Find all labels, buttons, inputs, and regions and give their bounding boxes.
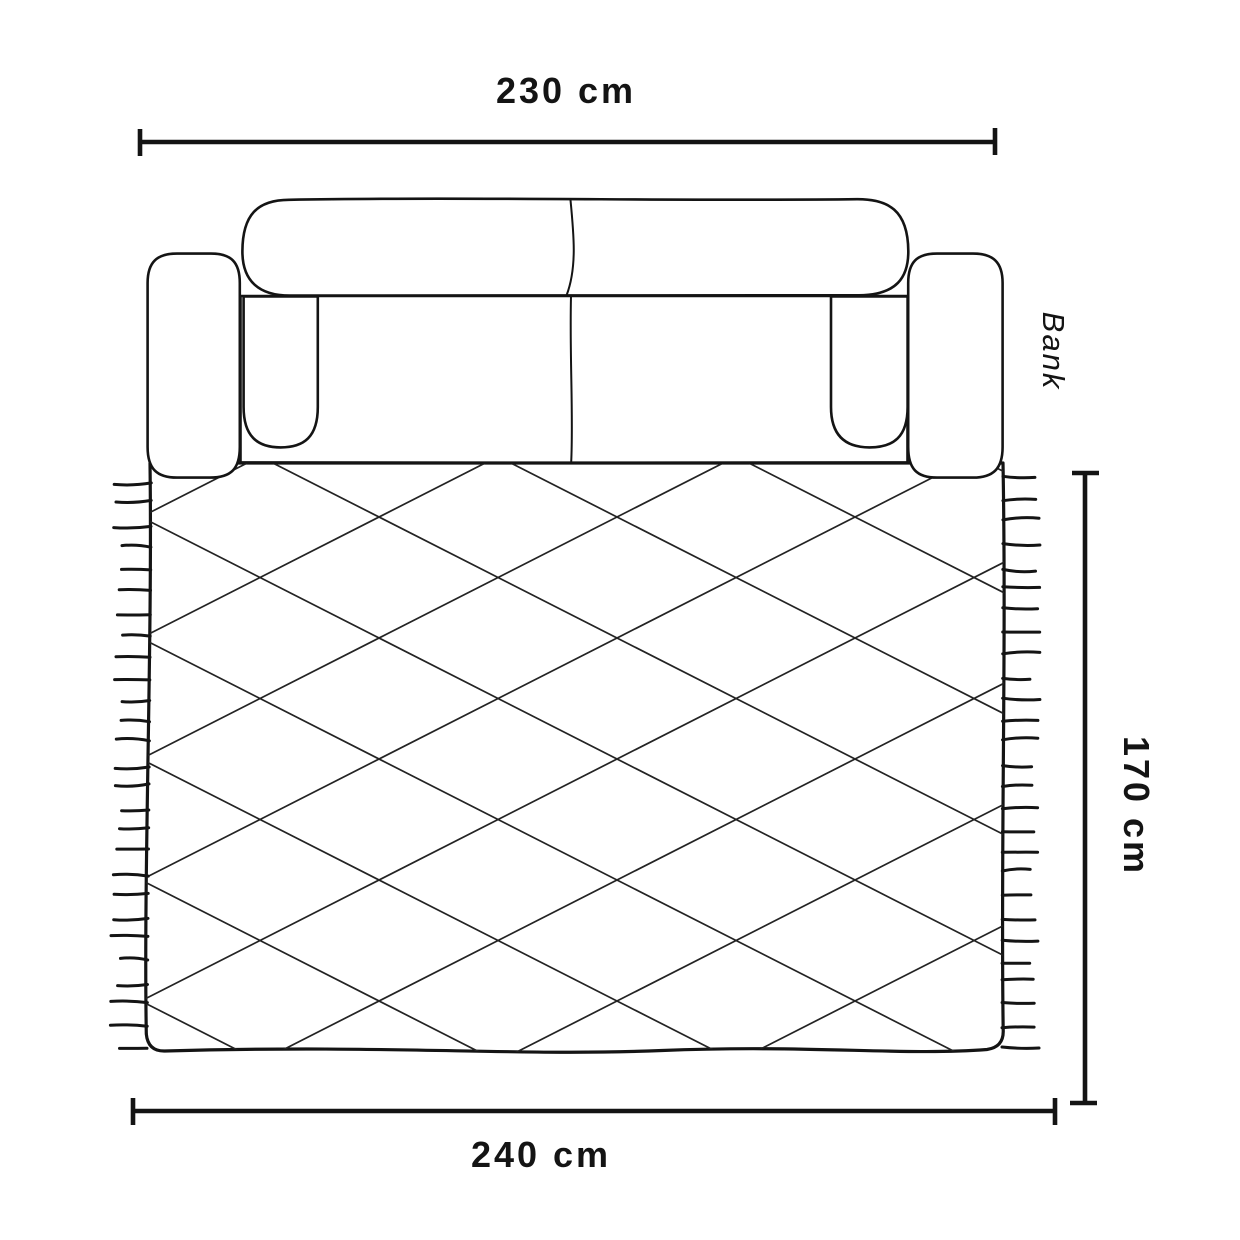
rug-depth-label: 170 cm <box>1116 736 1157 876</box>
fringe-strand <box>111 935 148 936</box>
fringe-strand <box>116 500 151 502</box>
fringe-strand <box>115 784 149 786</box>
sofa-armrest-left <box>148 254 240 478</box>
dimension-right: 170 cm <box>1070 473 1157 1104</box>
fringe-strand <box>119 589 150 590</box>
sofa-armrest-right <box>908 254 1002 478</box>
fringe-strand <box>114 893 148 894</box>
sofa <box>148 199 1003 478</box>
fringe-strand <box>1002 940 1038 941</box>
fringe-strand <box>1003 652 1040 654</box>
fringe-strand <box>1002 869 1030 871</box>
fringe-strand <box>1003 720 1038 721</box>
sofa-name-label: Bank <box>1036 312 1071 391</box>
fringe-strand <box>114 526 151 528</box>
fringe-strand <box>120 828 149 829</box>
fringe-strand <box>1003 678 1030 679</box>
fringe-strand <box>1003 569 1036 571</box>
fringe-strand <box>1002 807 1037 808</box>
fringe-strand <box>122 701 150 703</box>
fringe-strand <box>121 958 148 960</box>
fringe-strand <box>113 874 148 876</box>
fringe-strand <box>114 483 151 485</box>
fringe-strand <box>110 1025 147 1026</box>
fringe-strand <box>1003 738 1038 740</box>
sofa-rug-dimension-drawing: 230 cm 240 cm 170 cm Bank <box>0 0 1240 1240</box>
fringe-strand <box>116 656 150 657</box>
fringe-strand <box>1003 608 1038 609</box>
fringe-strand <box>1002 979 1033 980</box>
fringe-strand <box>1003 518 1039 520</box>
sofa-width-label: 230 cm <box>496 70 636 111</box>
fringe-strand <box>1003 544 1040 546</box>
fringe-strand <box>118 985 148 986</box>
fringe-strand <box>1002 785 1032 787</box>
fringe-strand <box>121 720 149 722</box>
fringe-strand <box>1002 1003 1034 1004</box>
fringe-strand <box>115 767 149 769</box>
dimension-top: 230 cm <box>140 70 995 156</box>
fringe-strand <box>1002 919 1035 920</box>
fringe-strand <box>1002 1027 1034 1028</box>
fringe-strand <box>122 810 149 811</box>
fringe-strand <box>1003 476 1035 478</box>
rug-width-label: 240 cm <box>471 1134 611 1175</box>
fringe-strand <box>1002 1047 1039 1048</box>
sofa-inner-pad-right <box>831 297 908 448</box>
dimension-bottom: 240 cm <box>133 1098 1055 1175</box>
fringe-strand <box>111 1001 148 1003</box>
fringe-strand <box>1003 499 1036 501</box>
sofa-backrest <box>242 199 908 296</box>
fringe-strand <box>122 569 151 570</box>
fringe-strand <box>114 918 148 920</box>
fringe-strand <box>1003 698 1040 700</box>
rug-outline <box>146 463 1004 1052</box>
fringe-strand <box>122 545 151 547</box>
floorplan-diagram: 230 cm 240 cm 170 cm Bank <box>0 0 1240 1240</box>
fringe-strand <box>1003 587 1040 588</box>
sofa-seat <box>241 296 908 463</box>
rug-fringe-right <box>1002 476 1040 1048</box>
sofa-inner-pad-left <box>244 297 318 448</box>
fringe-strand <box>123 635 151 636</box>
fringe-strand <box>1003 766 1032 767</box>
fringe-strand <box>116 739 149 741</box>
